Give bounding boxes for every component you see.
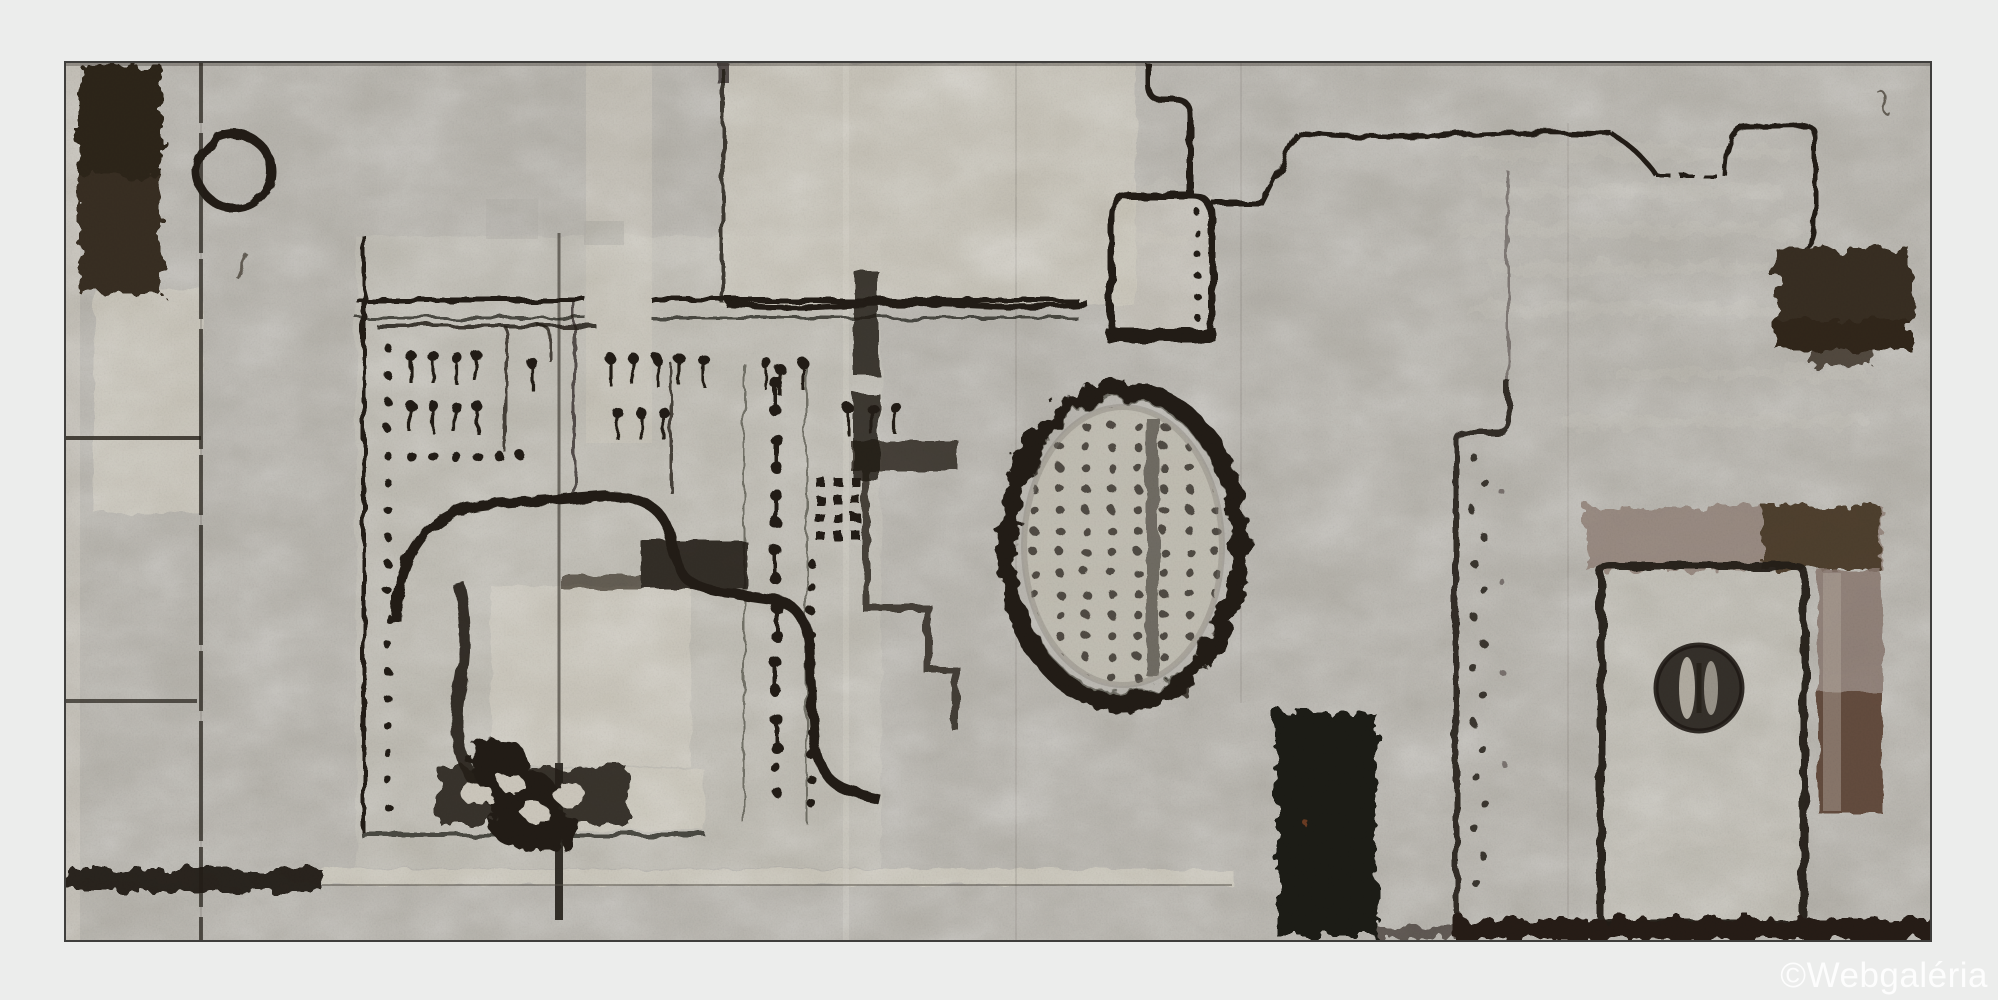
- watermark: ©Webgaléria: [1780, 956, 1988, 996]
- painting-canvas: [66, 63, 1930, 940]
- film-grain: [66, 63, 1930, 940]
- photo-backdrop: ©Webgaléria: [0, 0, 1998, 1000]
- artwork-image: [64, 61, 1932, 942]
